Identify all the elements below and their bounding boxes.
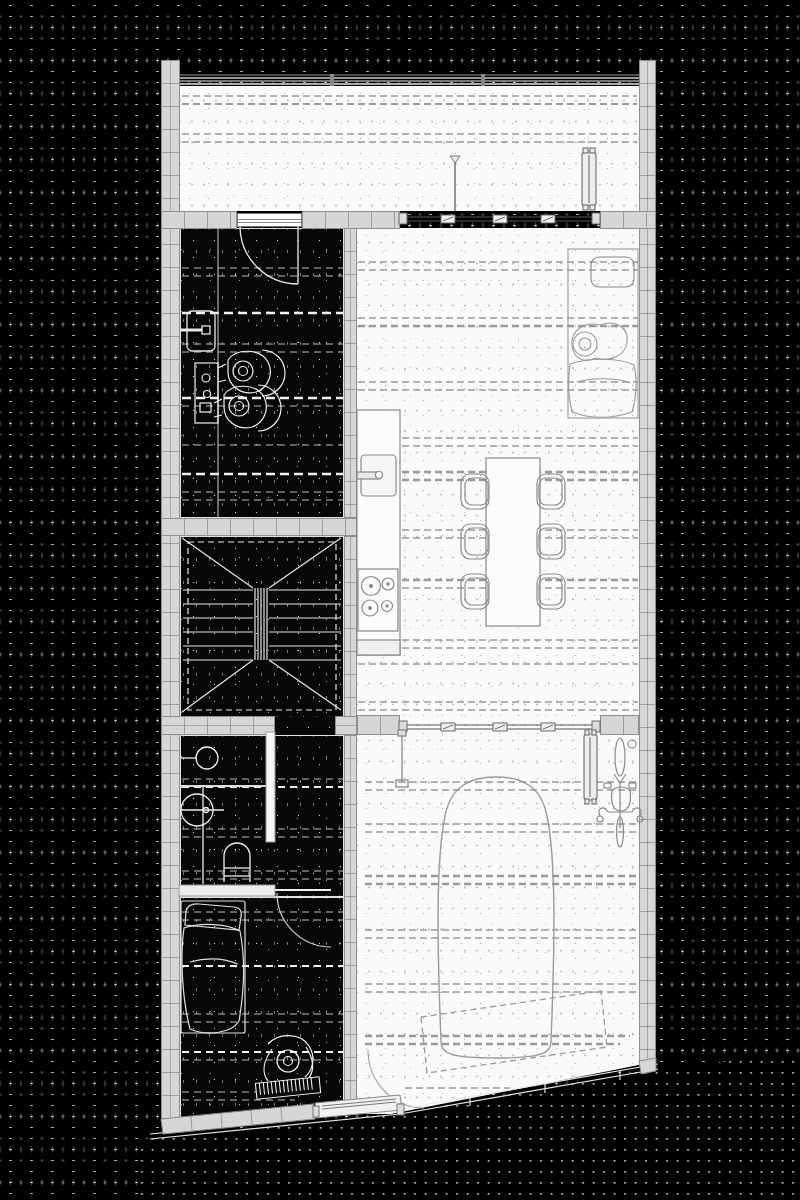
room-bedroom — [180, 897, 344, 1137]
garage-wall-stub-left — [357, 715, 400, 735]
party-wall-stair — [344, 536, 357, 718]
stair-wall-bottom-left — [161, 716, 275, 735]
room-terrace — [180, 86, 639, 211]
room-living-dining-kitchen — [357, 228, 639, 726]
glazing-top-vents — [399, 213, 600, 224]
stair-wall-top — [161, 518, 357, 536]
spandrel-wall-mid — [302, 211, 400, 229]
party-wall-study — [344, 228, 357, 518]
room-bathroom — [180, 735, 344, 897]
spandrel-wall-left — [161, 211, 237, 229]
room-study — [180, 228, 344, 518]
hall-passage — [275, 716, 337, 736]
glazing-top — [400, 217, 600, 221]
spandrel-wall-right — [600, 211, 656, 229]
party-wall-lower — [344, 735, 357, 1115]
terrace-railing — [180, 74, 639, 86]
room-garage — [357, 726, 639, 1118]
floor-plan-canvas — [0, 0, 800, 1200]
garage-wall-stub-right — [600, 715, 639, 735]
terrace-study-door-frame — [237, 213, 302, 227]
room-stairwell — [180, 536, 344, 718]
stair-wall-bottom-right — [335, 716, 357, 735]
